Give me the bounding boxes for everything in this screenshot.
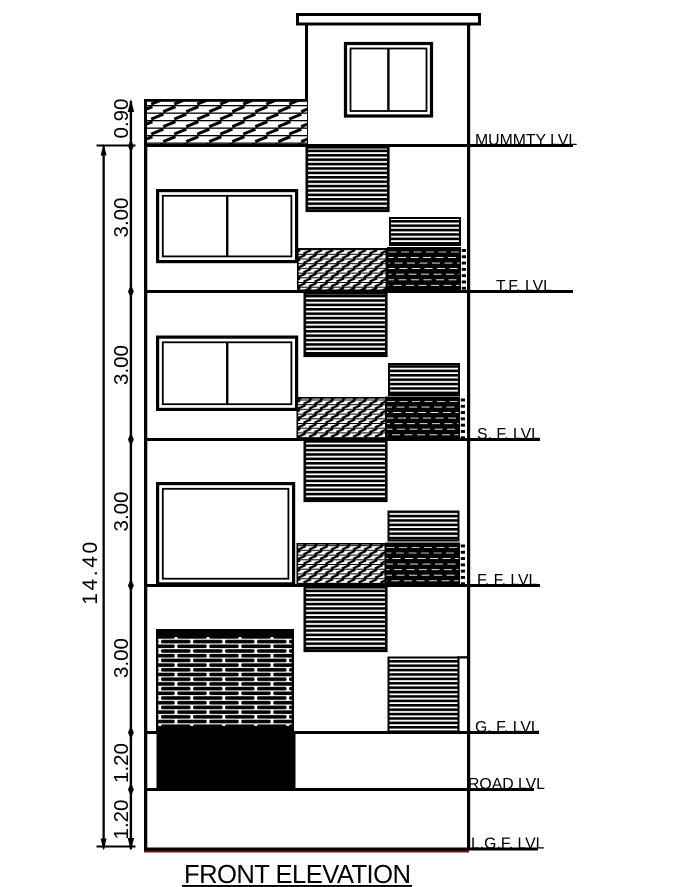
svg-text:14.40: 14.40	[79, 539, 102, 605]
svg-text:FRONT ELEVATION: FRONT ELEVATION	[184, 861, 410, 887]
svg-text:1.20: 1.20	[110, 743, 133, 783]
svg-text:F. F. LVL: F. F. LVL	[477, 572, 538, 589]
svg-text:0.90: 0.90	[110, 99, 133, 139]
svg-text:L.G.F. LVL: L.G.F. LVL	[471, 835, 545, 852]
svg-text:MUMMTY LVL: MUMMTY LVL	[475, 132, 577, 149]
svg-text:T.F. LVL: T.F. LVL	[496, 278, 552, 295]
svg-text:ROAD LVL: ROAD LVL	[468, 776, 545, 793]
svg-text:S. F. LVL: S. F. LVL	[477, 426, 540, 443]
svg-text:1.20: 1.20	[110, 800, 133, 840]
svg-text:3.00: 3.00	[110, 638, 133, 678]
svg-text:3.00: 3.00	[110, 345, 133, 385]
svg-text:3.00: 3.00	[110, 198, 133, 238]
svg-text:3.00: 3.00	[110, 492, 133, 532]
svg-text:G. F. LVL: G. F. LVL	[475, 719, 540, 736]
